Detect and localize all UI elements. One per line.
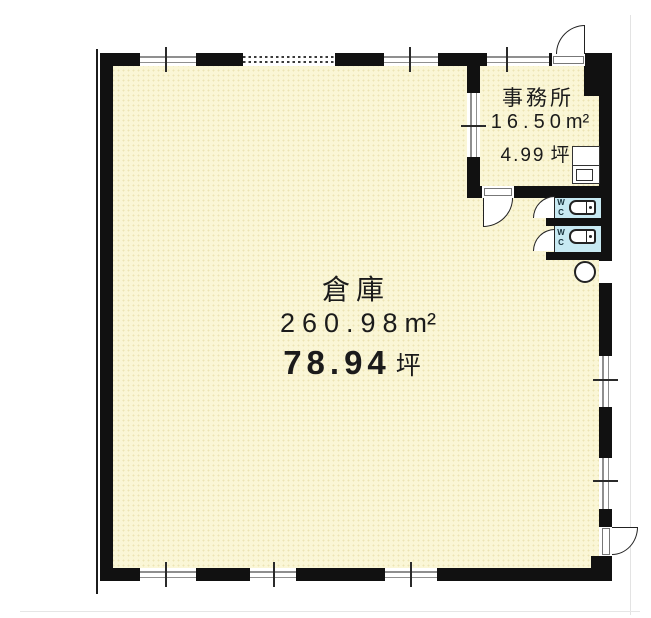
wall-left	[100, 53, 113, 581]
scan-edge-vertical	[630, 15, 631, 615]
window	[487, 53, 549, 66]
wc-divider-wall	[546, 218, 612, 226]
side-door-panel	[602, 528, 610, 555]
window	[599, 356, 612, 407]
warehouse-area-tsubo: 78.94坪	[283, 344, 421, 382]
window	[385, 568, 437, 581]
window	[384, 53, 438, 66]
office-entrance-door-panel	[553, 56, 584, 64]
corner-block-top-right	[584, 53, 612, 96]
exterior-outline	[96, 49, 98, 594]
wc-label: W C	[555, 198, 567, 217]
window	[140, 53, 196, 66]
wc-bottom-wall	[546, 252, 612, 260]
office-door-panel	[484, 188, 512, 196]
window	[140, 568, 196, 581]
corner-block-bottom-right	[591, 556, 612, 581]
wc-label: W C	[555, 228, 567, 247]
office-room-name: 事務所	[502, 82, 574, 112]
kitchenette-sink	[576, 169, 593, 181]
toilet-icon	[569, 200, 596, 215]
scan-edge-horizontal	[20, 611, 640, 612]
window	[467, 93, 480, 157]
door-arc	[612, 527, 638, 555]
office-area-sqm: 16.50m²	[491, 111, 589, 134]
basin-wall-notch	[599, 261, 612, 283]
hand-basin-icon	[574, 261, 596, 283]
office-area-tsubo: 4.99坪	[501, 140, 572, 167]
door-arc	[556, 25, 585, 54]
warehouse-area-sqm: 260.98m²	[280, 308, 436, 339]
window	[599, 458, 612, 509]
floor-plan: W C W C 事務所 16.50m² 4.99坪 倉庫 260.98m² 78…	[0, 0, 651, 618]
toilet-icon	[569, 229, 596, 244]
shutter-opening	[243, 53, 335, 66]
window	[250, 568, 296, 581]
warehouse-room-name: 倉庫	[322, 268, 390, 308]
